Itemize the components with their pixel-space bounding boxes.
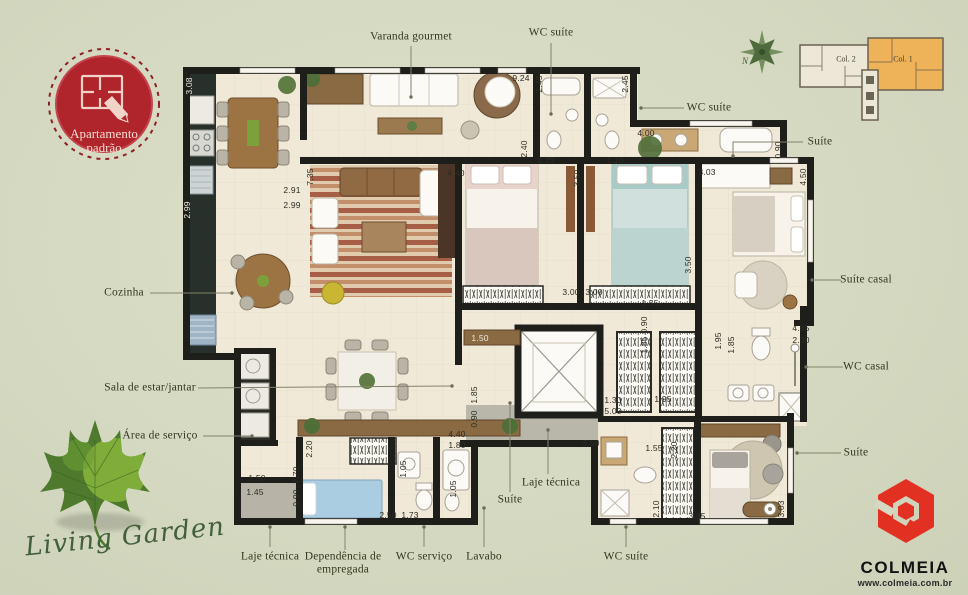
- colmeia-brand: COLMEIA www.colmeia.com.br: [845, 470, 965, 588]
- leader-dot-wc-suite-top: [549, 112, 552, 115]
- leader-dot-area-servico: [250, 434, 253, 437]
- leader-dot-wc-casal: [804, 365, 807, 368]
- leader-dot-suite-casal: [810, 278, 813, 281]
- leader-dot-varanda-gourmet: [409, 95, 412, 98]
- keyplan-col1-label: Col. 1: [893, 55, 913, 64]
- leader-dot-lavabo: [482, 506, 485, 509]
- leader-dot-wc-suite-top-right: [639, 106, 642, 109]
- leader-dot-laje-tecnica-center: [546, 428, 549, 431]
- leader-dot-suite-right: [795, 451, 798, 454]
- leader-dot-wc-servico: [422, 525, 425, 528]
- apartment-type-badge: Apartamento padrão: [48, 48, 160, 160]
- leader-dot-wc-suite-bottom: [624, 525, 627, 528]
- leader-dot-sala-estar-jantar: [450, 384, 453, 387]
- badge-line-2: padrão: [48, 140, 160, 156]
- leader-line-suite-top-right: [733, 142, 803, 156]
- compass-north-label: N: [742, 56, 748, 66]
- leader-dot-laje-tecnica-left: [268, 525, 271, 528]
- keyplan-col2-label: Col. 2: [836, 55, 856, 64]
- leader-dot-suite-top-right: [731, 154, 734, 157]
- brand-name: COLMEIA: [845, 558, 965, 578]
- leader-line-sala-estar-jantar: [198, 386, 452, 388]
- leader-dot-suite-center: [508, 401, 511, 404]
- floor-plan-page: Varanda gourmetWC suíteWC suíteSuíteCozi…: [0, 0, 968, 595]
- brand-url: www.colmeia.com.br: [845, 578, 965, 588]
- leader-dot-dependencia-empregada: [343, 525, 346, 528]
- leader-dot-cozinha: [230, 291, 233, 294]
